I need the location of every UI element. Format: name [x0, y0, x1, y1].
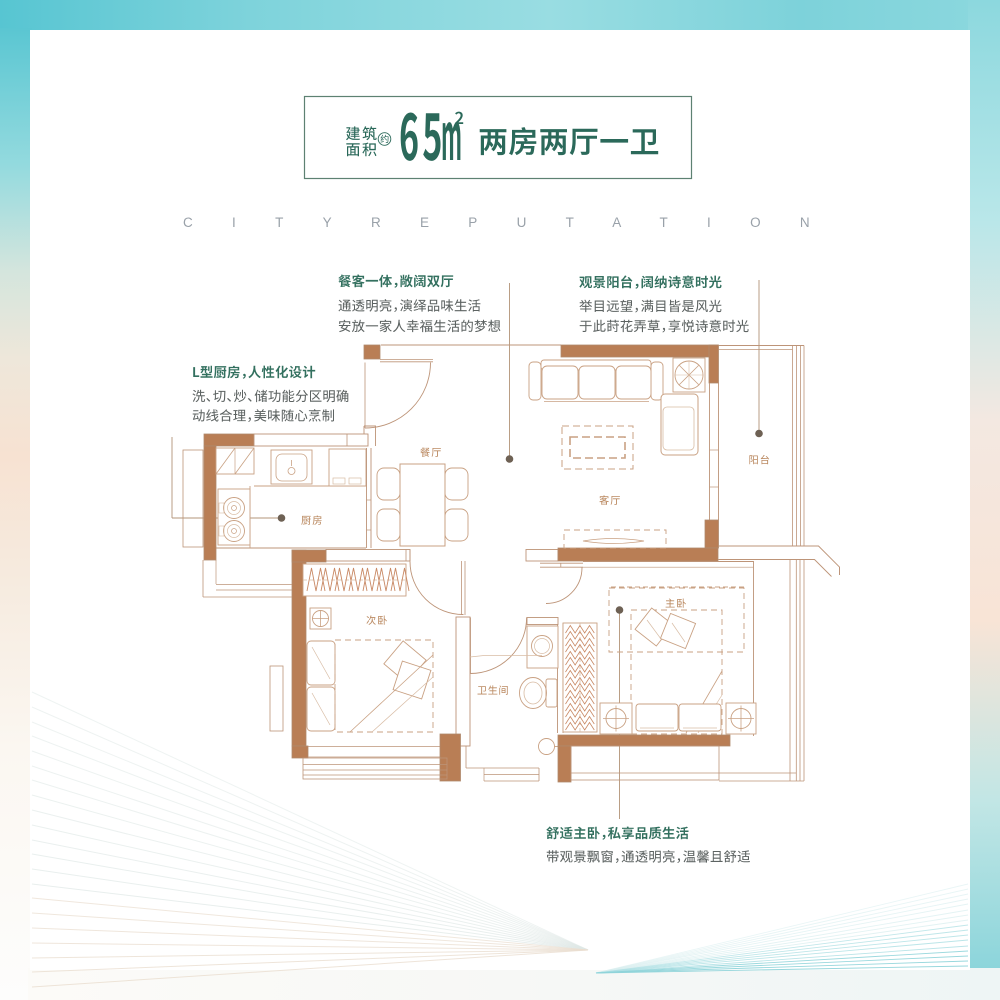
- svg-text:CITYREPUTATION: CITYREPUTATION: [183, 215, 849, 230]
